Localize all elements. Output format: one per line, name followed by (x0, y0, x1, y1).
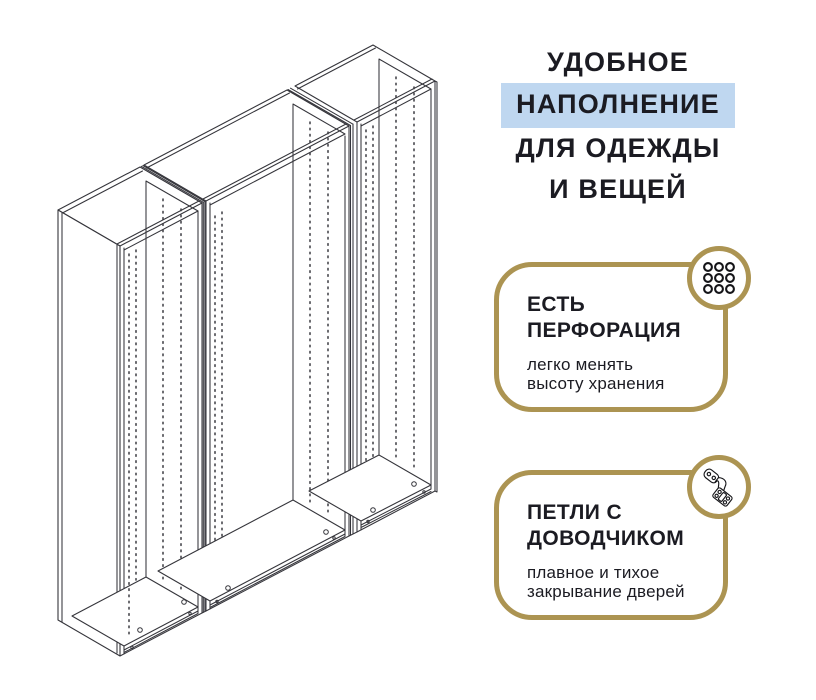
wardrobe-frame-illustration (0, 0, 470, 680)
feature-description: плавное и тихое закрывание дверей (527, 563, 705, 601)
feature-title: ПЕТЛИ С ДОВОДЧИКОМ (527, 500, 705, 552)
perforation-holes-icon (687, 246, 751, 310)
headline-line-2: НАПОЛНЕНИЕ (472, 83, 764, 128)
headline-line-3: ДЛЯ ОДЕЖДЫ (472, 128, 764, 169)
headline-line-4: И ВЕЩЕЙ (472, 169, 764, 210)
headline: УДОБНОЕ НАПОЛНЕНИЕ ДЛЯ ОДЕЖДЫ И ВЕЩЕЙ (472, 42, 764, 210)
headline-line-1: УДОБНОЕ (472, 42, 764, 83)
soft-close-hinge-icon (687, 455, 751, 519)
feature-title: ЕСТЬ ПЕРФОРАЦИЯ (527, 292, 705, 344)
feature-description: легко менять высоту хранения (527, 355, 705, 393)
infographic-canvas: УДОБНОЕ НАПОЛНЕНИЕ ДЛЯ ОДЕЖДЫ И ВЕЩЕЙ ЕС… (0, 0, 816, 700)
headline-highlight: НАПОЛНЕНИЕ (501, 83, 735, 128)
